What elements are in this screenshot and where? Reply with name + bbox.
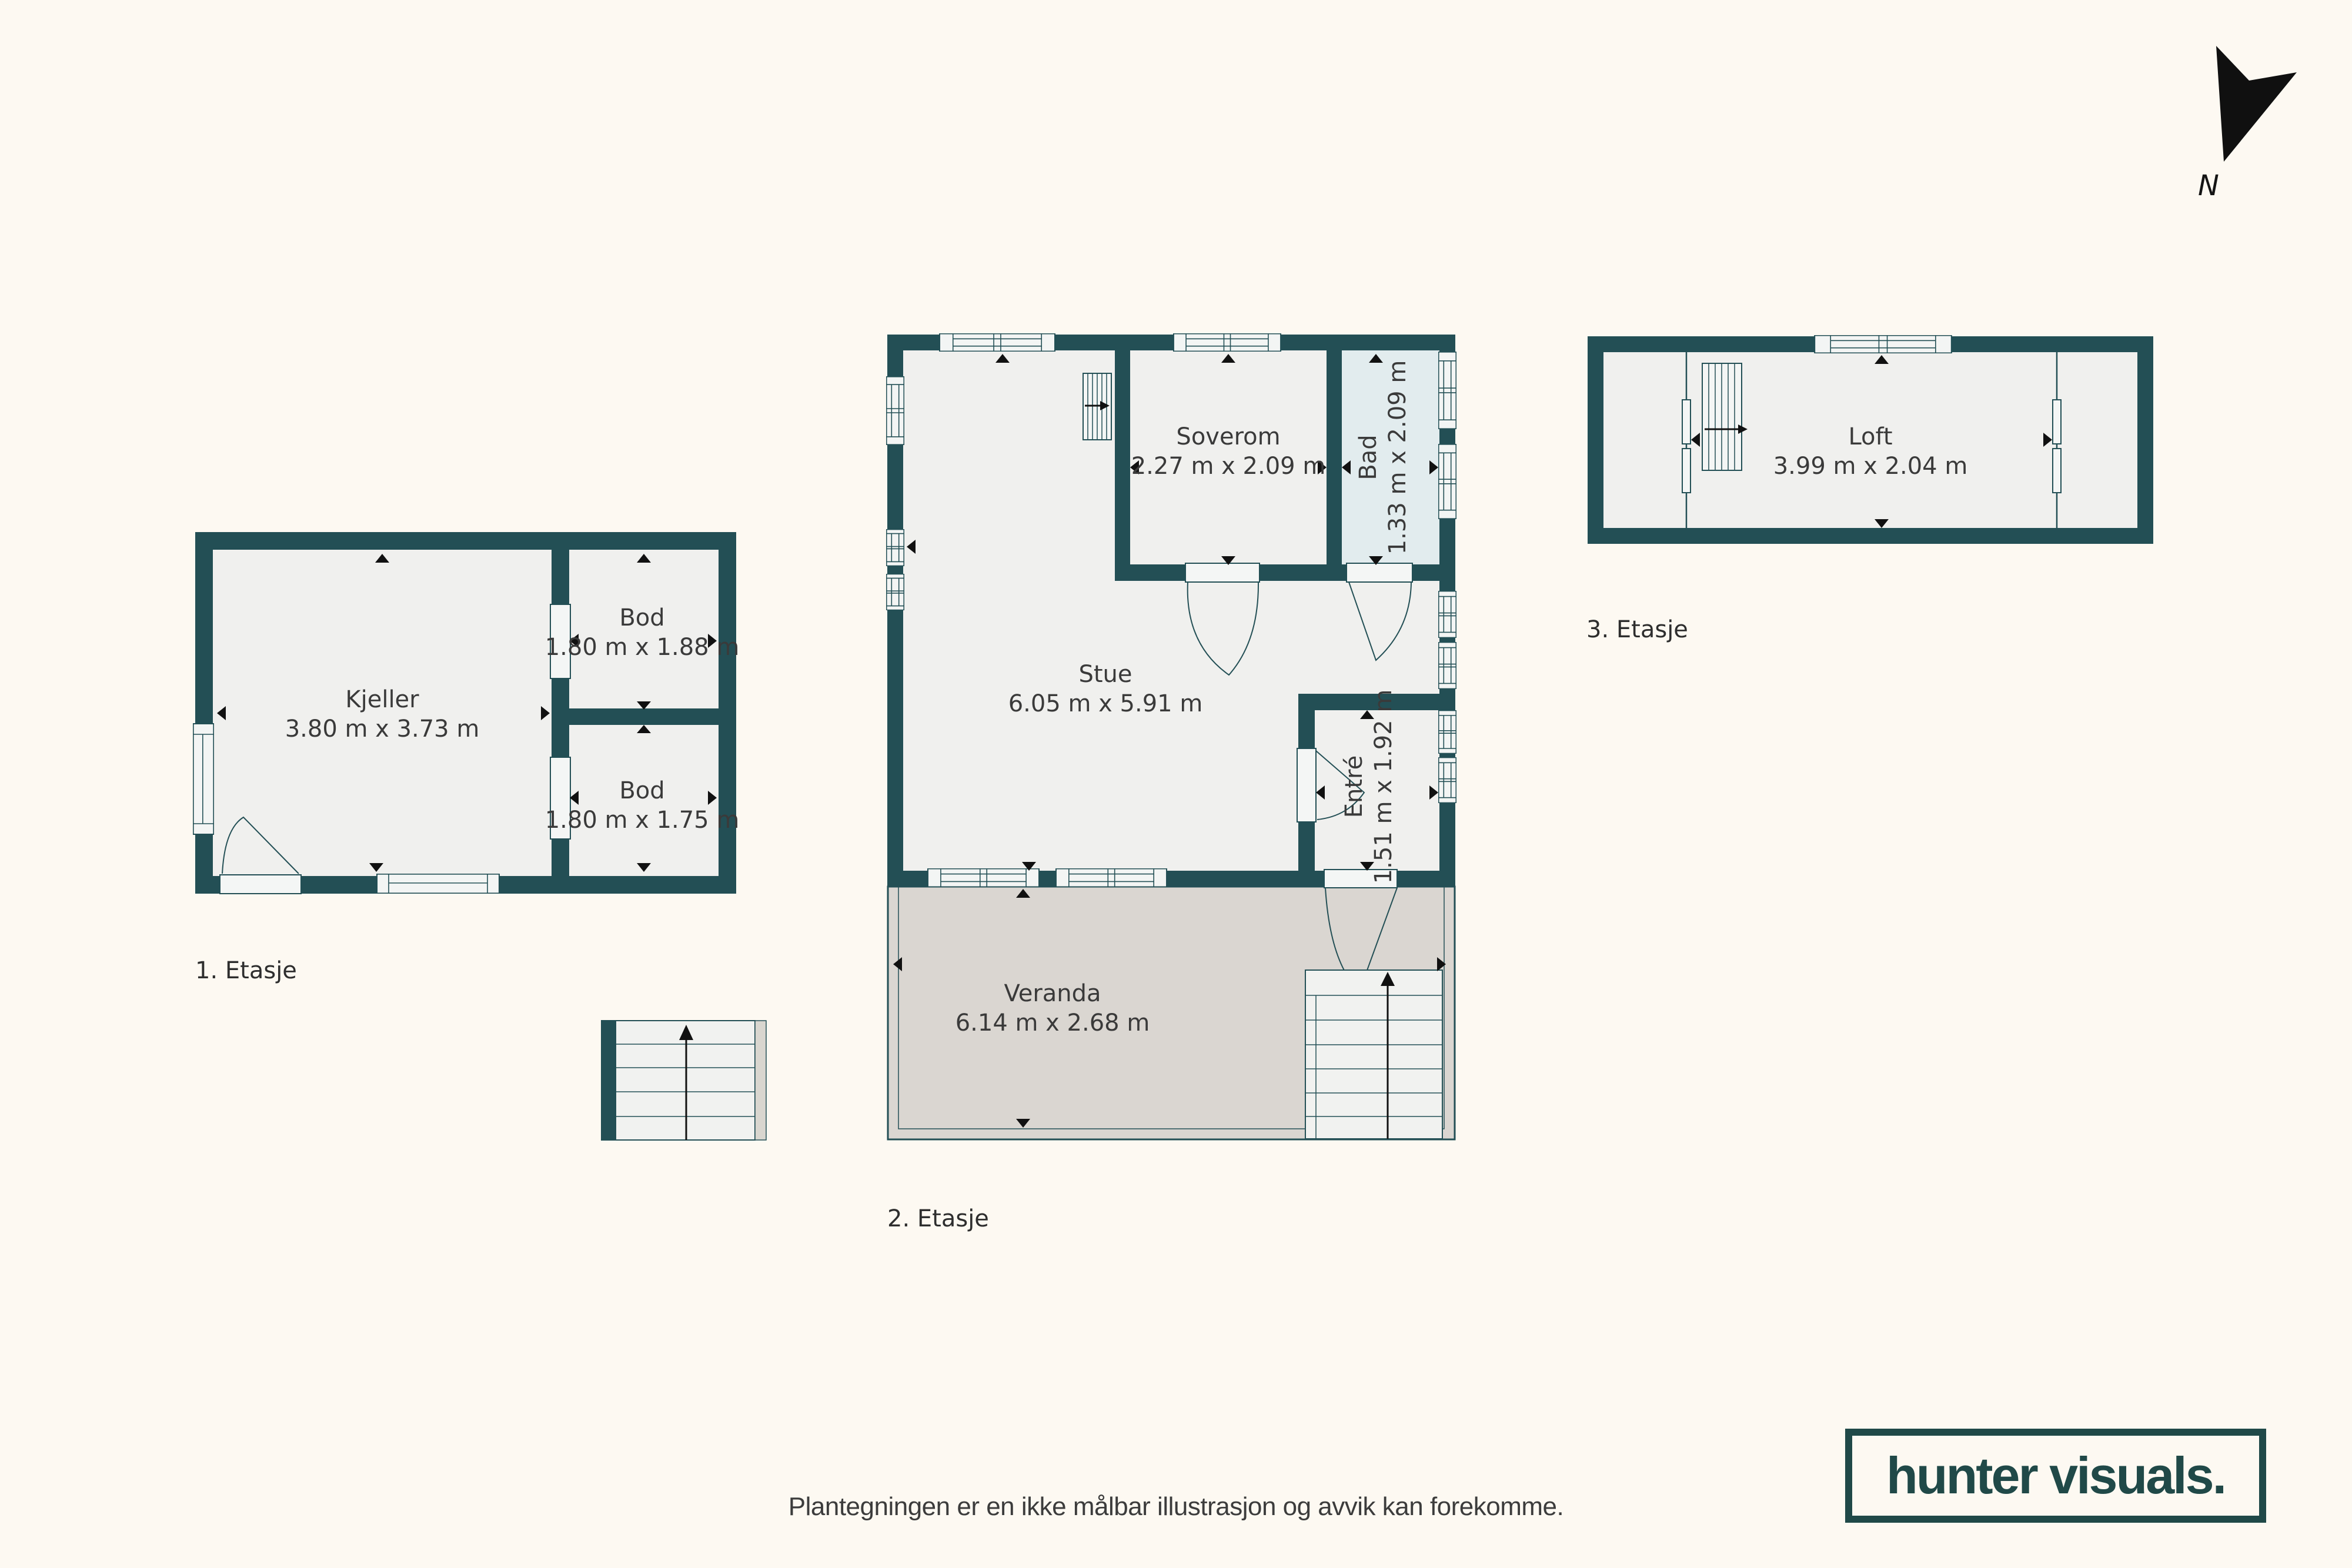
knee-wall-opening <box>2053 449 2061 493</box>
window-icon <box>928 868 1039 887</box>
room-label-loft: Loft 3.99 m x 2.04 m <box>1753 422 1988 481</box>
knee-wall-opening <box>1682 400 1690 444</box>
room-dimensions: 3.80 m x 3.73 m <box>265 714 500 744</box>
knee-wall-opening <box>2053 400 2061 444</box>
soverom-bottom-wall <box>1115 564 1187 581</box>
floorplan-page: N Kjeller 3.80 m x 3.73 m Bod 1.80 m x 1… <box>0 0 2352 1568</box>
window-icon <box>1056 868 1167 887</box>
room-label-bod-2: Bod 1.80 m x 1.75 m <box>524 776 760 835</box>
room-name: Bod <box>524 776 760 805</box>
room-name: Stue <box>988 660 1223 689</box>
room-dimensions: 1.51 m x 1.92 m <box>1369 669 1398 904</box>
window-icon <box>886 574 904 610</box>
knee-wall-opening <box>1682 449 1690 493</box>
room-name: Kjeller <box>265 685 500 714</box>
staircase-icon <box>1702 363 1748 470</box>
room-label-veranda: Veranda 6.14 m x 2.68 m <box>935 979 1170 1038</box>
exterior-staircase-icon <box>601 1020 769 1141</box>
logo: hunter visuals. <box>1845 1429 2266 1523</box>
window-icon <box>1438 444 1456 519</box>
room-name: Bod <box>524 603 760 633</box>
room-dimensions: 2.27 m x 2.09 m <box>1111 452 1346 481</box>
window-icon <box>886 377 904 445</box>
window-icon <box>1438 710 1456 753</box>
window-icon <box>1438 642 1456 688</box>
room-dimensions: 3.99 m x 2.04 m <box>1753 452 1988 481</box>
room-name: Entré <box>1339 669 1369 904</box>
entre-left-wall <box>1298 821 1315 871</box>
door-opening <box>1185 563 1259 582</box>
room-label-stue: Stue 6.05 m x 5.91 m <box>988 660 1223 718</box>
room-dimensions: 6.14 m x 2.68 m <box>935 1008 1170 1038</box>
north-label: N <box>2198 169 2219 202</box>
room-label-kjeller: Kjeller 3.80 m x 3.73 m <box>265 685 500 744</box>
room-label-soverom: Soverom 2.27 m x 2.09 m <box>1111 422 1346 481</box>
room-label-bad: Bad 1.33 m x 2.09 m <box>1354 340 1412 575</box>
staircase-icon <box>1083 373 1111 440</box>
door-opening <box>220 875 301 894</box>
window-icon <box>886 529 904 566</box>
floor2-title: 2. Etasje <box>887 1205 989 1232</box>
bad-bottom-wall <box>1411 564 1439 581</box>
floor3-title: 3. Etasje <box>1586 616 1688 643</box>
veranda-stairs-icon <box>1305 970 1442 1139</box>
room-dimensions: 1.80 m x 1.88 m <box>524 633 760 662</box>
soverom-bottom-wall <box>1258 564 1348 581</box>
window-icon <box>193 724 214 834</box>
window-icon <box>1174 333 1281 352</box>
room-dimensions: 1.33 m x 2.09 m <box>1383 340 1412 575</box>
floor1-title: 1. Etasje <box>195 957 297 984</box>
room-name: Loft <box>1753 422 1988 452</box>
room-name: Soverom <box>1111 422 1346 452</box>
room-dimensions: 6.05 m x 5.91 m <box>988 689 1223 718</box>
room-dimensions: 1.80 m x 1.75 m <box>524 805 760 835</box>
room-name: Bad <box>1354 340 1383 575</box>
window-icon <box>1815 335 1952 353</box>
door-opening <box>1297 748 1316 822</box>
window-icon <box>1438 757 1456 803</box>
floor1-bod-divider-wall <box>569 708 719 725</box>
logo-text: hunter visuals. <box>1886 1446 2225 1506</box>
window-icon <box>1438 591 1456 637</box>
window-icon <box>1438 352 1456 429</box>
room-name: Veranda <box>935 979 1170 1008</box>
room-label-entre: Entré 1.51 m x 1.92 m <box>1339 669 1398 904</box>
entre-left-wall <box>1298 710 1315 750</box>
room-label-bod-1: Bod 1.80 m x 1.88 m <box>524 603 760 662</box>
window-icon <box>940 333 1055 352</box>
window-icon <box>377 874 499 894</box>
